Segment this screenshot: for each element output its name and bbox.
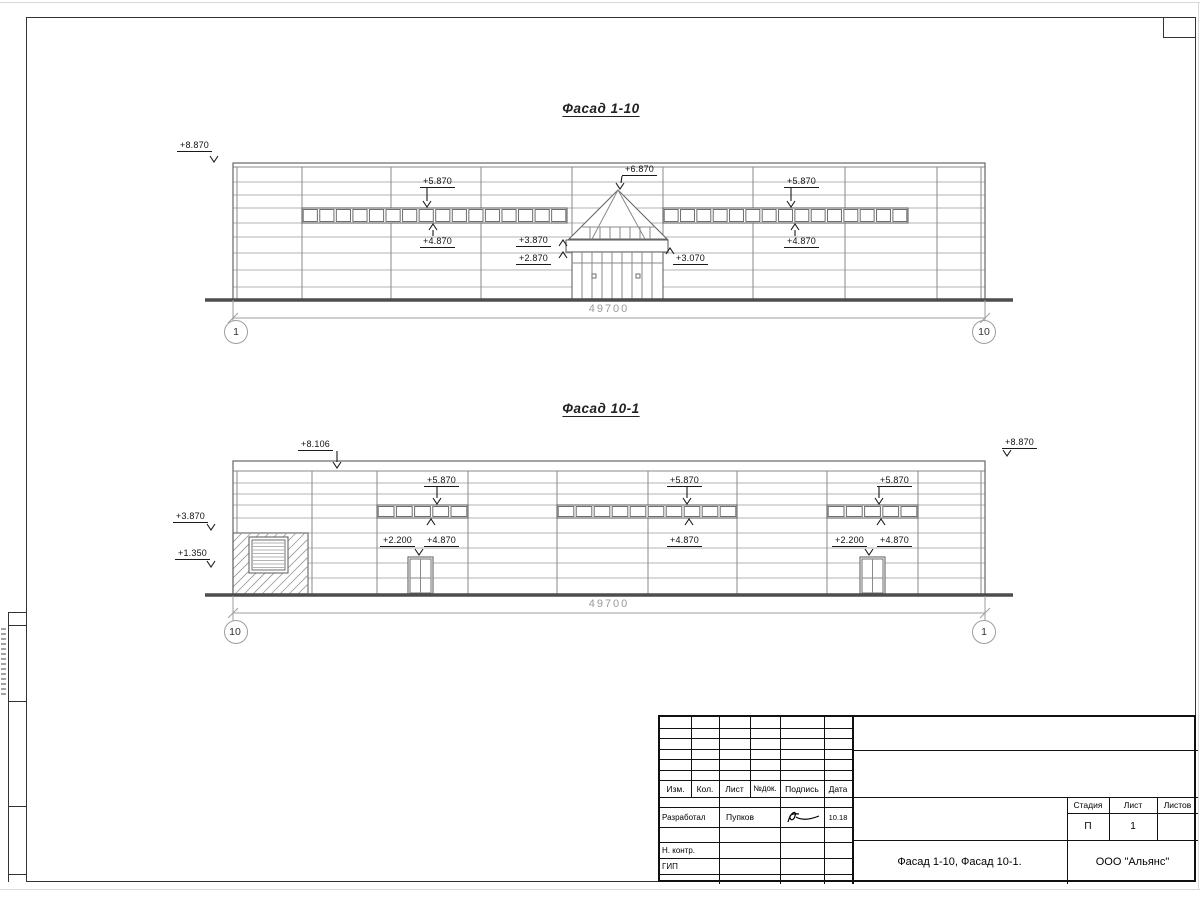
- elevation-mark: +3.870: [173, 511, 208, 523]
- tb-line: [660, 827, 852, 828]
- tb-line: [660, 738, 852, 739]
- facade-1-axis-left: 1: [224, 326, 248, 338]
- tb-line: [660, 770, 852, 771]
- tb-stage-label: Стадия: [1067, 797, 1109, 813]
- facade-2-axis-left: 10: [223, 626, 247, 638]
- elevation-mark: +2.200: [832, 535, 867, 547]
- tb-col-kol: Кол.: [691, 780, 719, 797]
- tb-date-developed: 10.18: [824, 807, 852, 827]
- elevation-mark: +4.870: [420, 236, 455, 248]
- drawing-sheet: Фасад 1-10 Фасад 10-1 49700 49700 1 10 1…: [0, 0, 1200, 900]
- tb-sheets-value: [1157, 813, 1198, 840]
- tb-col-izm: Изм.: [660, 780, 691, 797]
- facade-2-axis-right: 1: [972, 626, 996, 638]
- elevation-mark: +8.870: [177, 140, 212, 152]
- signature: [782, 808, 822, 826]
- tb-role-gip: ГИП: [660, 858, 721, 874]
- elevation-mark: +5.870: [784, 176, 819, 188]
- elevation-mark: +5.870: [424, 475, 459, 487]
- tb-col-ndoc: №док.: [750, 780, 780, 797]
- elevation-mark: +1.350: [175, 548, 210, 560]
- tb-col-list: Лист: [719, 780, 750, 797]
- tb-col-podpis: Подпись: [780, 780, 824, 797]
- elevation-mark: +6.870: [622, 164, 657, 176]
- elevation-mark: +8.870: [1002, 437, 1037, 449]
- facade-2-dimension: 49700: [549, 598, 669, 610]
- tb-line: [852, 750, 1198, 751]
- facade-2-title: Фасад 10-1: [501, 401, 701, 416]
- tb-line: [660, 749, 852, 750]
- elevation-mark: +3.070: [673, 253, 708, 265]
- elevation-mark: +5.870: [420, 176, 455, 188]
- facade-1-dimension: 49700: [549, 303, 669, 315]
- elevation-mark: +8.106: [298, 439, 333, 451]
- tb-sheet-label: Лист: [1109, 797, 1157, 813]
- tb-role-developed: Разработал: [660, 807, 721, 827]
- tb-sheet-value: 1: [1109, 813, 1157, 840]
- tb-line: [660, 759, 852, 760]
- tb-name-developed: Пупков: [724, 807, 782, 827]
- elevation-mark: +4.870: [877, 535, 912, 547]
- title-block: Изм. Кол. Лист №док. Подпись Дата Разраб…: [658, 715, 1196, 882]
- tb-sheets-label: Листов: [1157, 797, 1198, 813]
- elevation-mark: +2.200: [380, 535, 415, 547]
- tb-organization: ООО "Альянс": [1067, 840, 1198, 884]
- facade-1-title: Фасад 1-10: [501, 101, 701, 116]
- elevation-mark: +4.870: [784, 236, 819, 248]
- elevation-mark: +5.870: [667, 475, 702, 487]
- tb-stage-value: П: [1067, 813, 1109, 840]
- facade-1-axis-right: 10: [972, 326, 996, 338]
- elevation-mark: +2.870: [516, 253, 551, 265]
- tb-line: [660, 874, 852, 875]
- elevation-mark: +5.870: [877, 475, 912, 487]
- elevation-mark: +4.870: [667, 535, 702, 547]
- tb-col-data: Дата: [824, 780, 852, 797]
- elevation-mark: +3.870: [516, 235, 551, 247]
- tb-doc-title: Фасад 1-10, Фасад 10-1.: [852, 840, 1067, 884]
- tb-role-ncontrol: Н. контр.: [660, 842, 721, 858]
- elevation-mark: +4.870: [424, 535, 459, 547]
- tb-line: [660, 728, 852, 729]
